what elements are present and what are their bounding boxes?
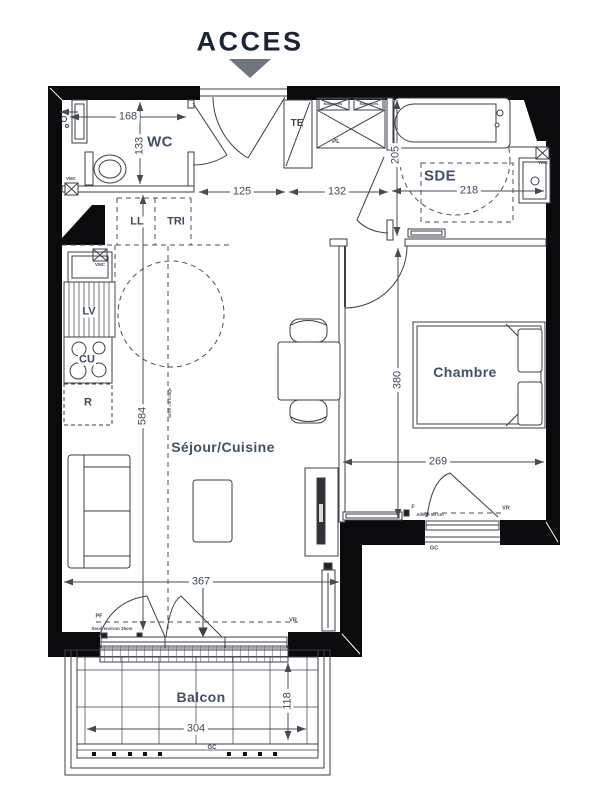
equip-label-vmc-sde: VMC — [538, 161, 548, 166]
access-label: ACCES — [196, 29, 303, 56]
equip-label-nourrices-right: Nourrices — [360, 102, 379, 106]
dim-205: 205 — [391, 143, 402, 167]
sde-fixtures — [394, 98, 550, 237]
opening-label-vr-chambre: VR — [502, 506, 510, 512]
room-label-sde: SDE — [424, 169, 456, 184]
equip-label-ll: LL — [129, 217, 144, 228]
opening-label-f: F — [411, 505, 414, 511]
opening-label-pf: PF — [95, 614, 102, 620]
dim-125: 125 — [230, 187, 254, 198]
equip-label-nourrices-left: Nourrices — [324, 102, 343, 106]
balcony-rail-posts — [92, 752, 277, 756]
dim-269: 269 — [426, 457, 450, 468]
room-label-chambre: Chambre — [433, 365, 496, 379]
floor-plan: ACCES WC SDE Chambre Séjour/Cuisine Balc… — [0, 0, 616, 800]
room-label-sejour: Séjour/Cuisine — [171, 440, 275, 454]
opening-label-allege: Allège 50 cm — [416, 513, 444, 518]
equip-label-vmc-wc: VMC — [66, 177, 76, 182]
access-arrow-icon — [229, 59, 271, 78]
closets — [284, 98, 385, 168]
dim-133: 133 — [135, 134, 146, 158]
opening-label-gc-chambre: GC — [430, 546, 438, 552]
equip-label-te: TE — [291, 119, 304, 129]
equip-label-lv: LV — [81, 307, 96, 318]
note-limite-carrelage: limite carrelage — [168, 388, 173, 419]
room-label-balcon: Balcon — [176, 690, 225, 704]
equip-label-pl: PL — [332, 139, 340, 145]
dim-367: 367 — [189, 577, 213, 588]
equip-label-r: R — [83, 398, 93, 409]
dim-218: 218 — [457, 186, 481, 197]
opening-label-gc-balcon: GC — [208, 745, 217, 751]
equip-label-vmc-kitchen: VMC — [95, 263, 105, 268]
opening-label-seuil: Seuil environ 15cm — [91, 627, 132, 632]
dim-380: 380 — [393, 368, 404, 392]
opening-label-vr-sejour: VR — [289, 618, 297, 624]
equip-label-tri: TRI — [166, 217, 186, 228]
dim-584: 584 — [138, 404, 149, 428]
dim-304: 304 — [184, 724, 208, 735]
room-label-wc: WC — [147, 135, 173, 150]
dim-118: 118 — [283, 689, 294, 713]
chambre-fixtures — [343, 322, 545, 542]
equip-label-cu: CU — [78, 355, 96, 366]
dim-168: 168 — [116, 112, 140, 123]
dim-132: 132 — [325, 187, 349, 198]
